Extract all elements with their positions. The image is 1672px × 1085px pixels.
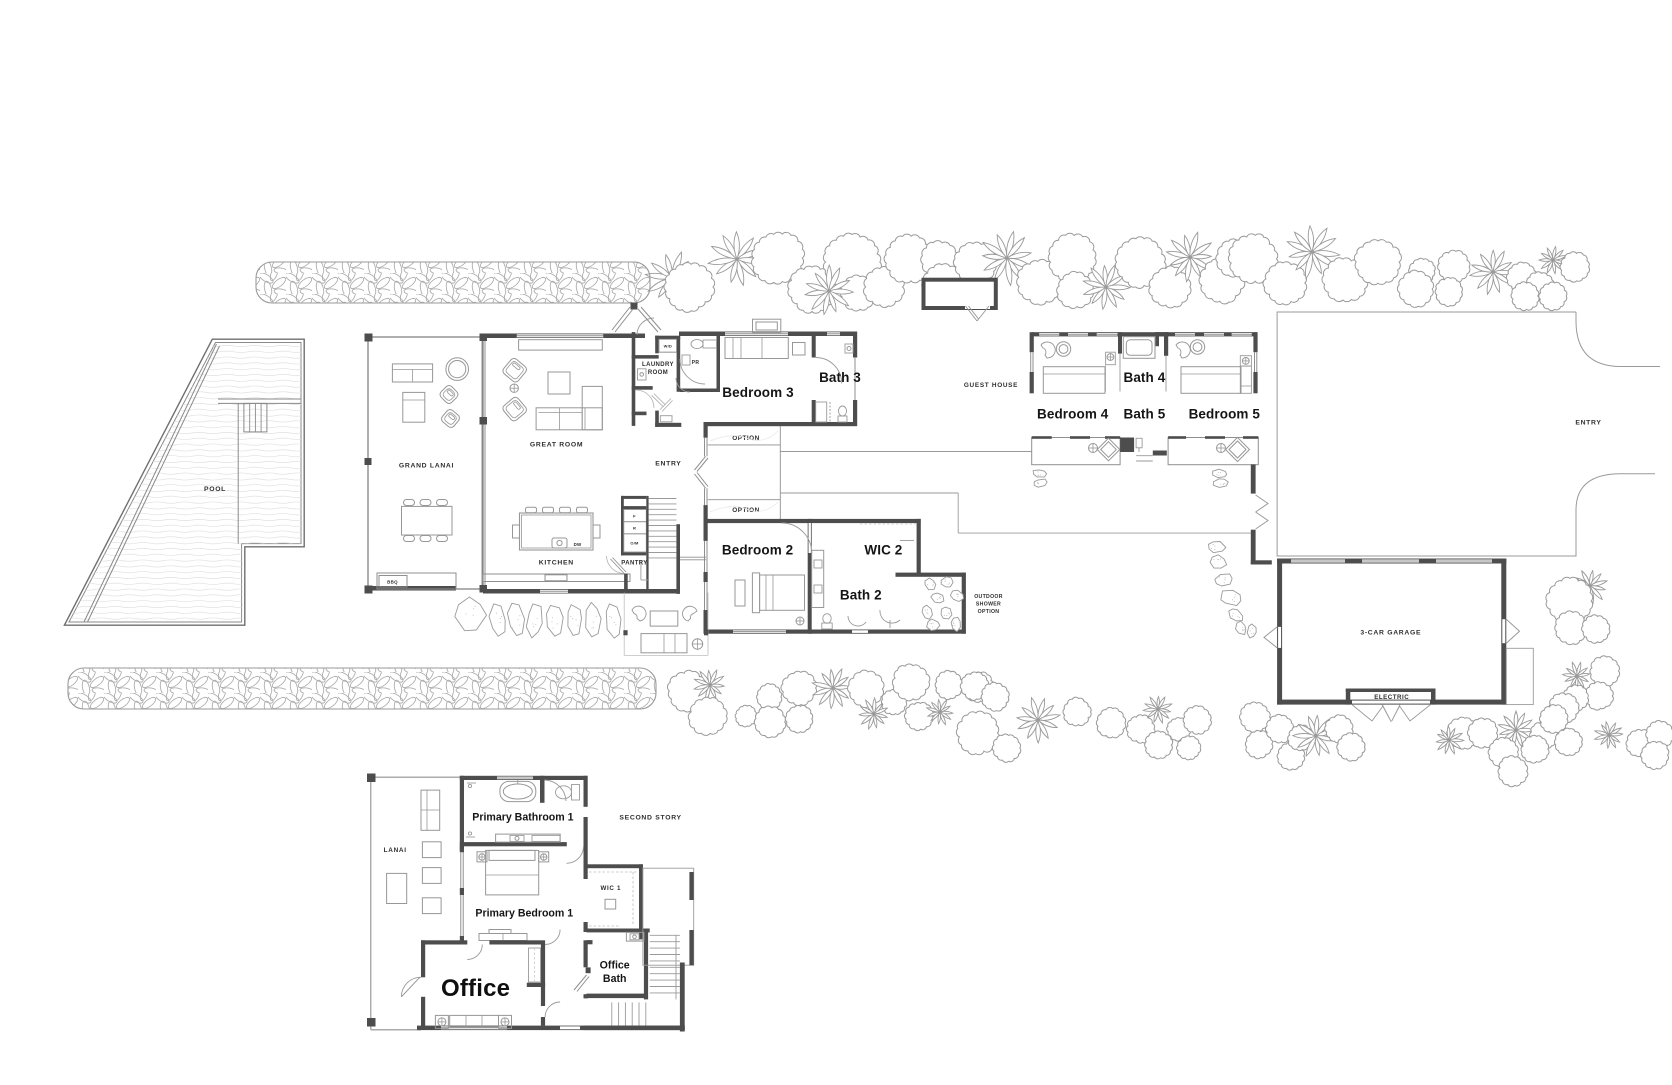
svg-text:PANTRY: PANTRY — [621, 561, 647, 567]
svg-text:Bath: Bath — [603, 973, 627, 985]
svg-text:OPTION: OPTION — [732, 507, 760, 514]
svg-text:ELECTRIC: ELECTRIC — [1374, 694, 1409, 701]
svg-text:GRAND LANAI: GRAND LANAI — [399, 463, 454, 470]
svg-text:F: F — [633, 514, 636, 519]
svg-text:Bath 2: Bath 2 — [840, 588, 882, 603]
svg-text:DW: DW — [574, 542, 582, 547]
svg-text:ENTRY: ENTRY — [1575, 420, 1601, 427]
svg-text:OPTION: OPTION — [978, 609, 1000, 615]
svg-text:Bedroom 2: Bedroom 2 — [722, 543, 793, 558]
svg-text:LAUNDRY: LAUNDRY — [642, 362, 674, 368]
svg-text:GREAT ROOM: GREAT ROOM — [530, 442, 583, 449]
svg-text:BBQ: BBQ — [387, 580, 398, 585]
svg-text:GUEST HOUSE: GUEST HOUSE — [964, 382, 1018, 389]
svg-text:Bath 5: Bath 5 — [1123, 407, 1165, 422]
svg-text:LANAI: LANAI — [384, 847, 407, 854]
svg-text:WIC 2: WIC 2 — [864, 543, 902, 558]
svg-text:Bath 3: Bath 3 — [819, 370, 861, 385]
svg-text:SECOND STORY: SECOND STORY — [619, 815, 681, 822]
svg-text:3-CAR GARAGE: 3-CAR GARAGE — [1360, 630, 1421, 637]
svg-text:Primary Bathroom 1: Primary Bathroom 1 — [472, 812, 573, 824]
svg-text:R: R — [633, 526, 636, 531]
svg-text:Bedroom 3: Bedroom 3 — [722, 385, 794, 400]
svg-text:Primary Bedroom 1: Primary Bedroom 1 — [475, 907, 573, 919]
svg-text:Bedroom 4: Bedroom 4 — [1037, 407, 1109, 422]
svg-text:SHOWER: SHOWER — [976, 602, 1001, 608]
svg-text:Office: Office — [441, 975, 510, 1002]
svg-text:Bedroom 5: Bedroom 5 — [1189, 407, 1261, 422]
svg-text:WIC 1: WIC 1 — [600, 885, 621, 892]
svg-text:O/M: O/M — [630, 541, 639, 546]
svg-text:Bath 4: Bath 4 — [1123, 370, 1165, 385]
svg-text:ENTRY: ENTRY — [655, 461, 681, 468]
svg-text:PR: PR — [692, 360, 700, 366]
svg-text:W/D: W/D — [664, 344, 672, 349]
svg-text:KITCHEN: KITCHEN — [539, 560, 574, 567]
svg-text:Office: Office — [600, 960, 630, 972]
svg-text:ROOM: ROOM — [648, 370, 668, 376]
svg-text:OUTDOOR: OUTDOOR — [974, 594, 1003, 600]
svg-text:POOL: POOL — [204, 486, 226, 493]
